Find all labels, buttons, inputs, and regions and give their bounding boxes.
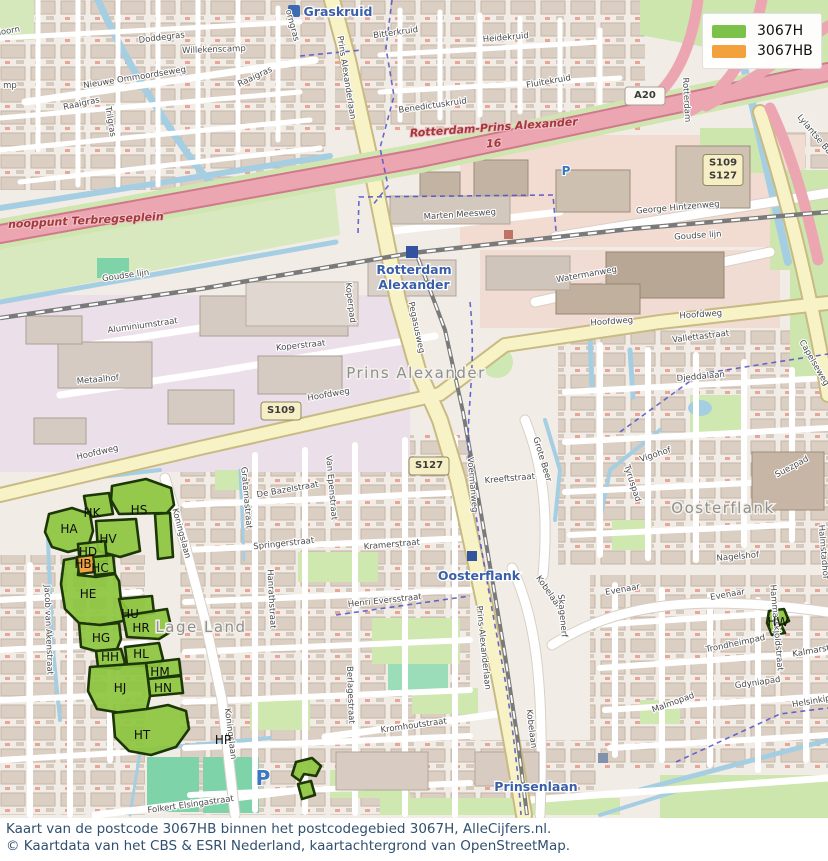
postcode-area-label: HG (92, 631, 110, 645)
station-label: Oosterflank (438, 568, 521, 583)
oosterflank-station-icon (467, 551, 477, 561)
legend-row-3067HB: 3067HB (712, 41, 812, 61)
postcode-area-label: HW (768, 615, 789, 629)
prinsenlaan-station-icon (598, 753, 608, 763)
postcode-area-label: HR (132, 621, 149, 635)
station-label: Rotterdam (376, 262, 451, 277)
road-badge-label: S127 (415, 460, 443, 471)
postcode-map-page: sdoornmpDoddegrasWillekenscampNieuwe Omm… (0, 0, 828, 861)
postcode-area-label: HC (91, 561, 108, 575)
postcode-area-label: HA (60, 522, 78, 536)
motorway-label: 16 (486, 136, 503, 150)
area-label: Lage Land (155, 618, 246, 636)
postcode-area-label: HP (215, 733, 231, 747)
postcode-area-label: HH (101, 650, 119, 664)
postcode-area-label: HB (74, 557, 91, 571)
road-badge-label: S109 (709, 158, 737, 169)
legend-label: 3067HB (757, 43, 813, 59)
map-legend: 3067H 3067HB (702, 13, 822, 69)
postcode-area-label: HV (99, 532, 117, 546)
legend-row-3067H: 3067H (712, 21, 812, 41)
postcode-area-label: HU (121, 607, 139, 621)
road-badge-label: A20 (634, 90, 656, 101)
map-image: sdoornmpDoddegrasWillekenscampNieuwe Omm… (0, 0, 828, 818)
postcode-area-label: HE (80, 587, 97, 601)
postcode-area-label: HS (131, 503, 148, 517)
rotterdam-alexander-station-icon (406, 246, 418, 258)
postcode-area-label: HK (84, 506, 102, 520)
area-label: Prins Alexander (346, 364, 486, 382)
postcode-area-label: HN (154, 681, 172, 695)
station-label: Alexander (378, 277, 450, 292)
road-badge-label: S109 (267, 405, 295, 416)
parking-icon: P (256, 766, 271, 790)
caption-line-1: Kaart van de postcode 3067HB binnen het … (6, 821, 828, 838)
map-canvas: sdoornmpDoddegrasWillekenscampNieuwe Omm… (0, 0, 828, 818)
station-label: Prinsenlaan (494, 779, 577, 794)
area-label: Oosterflank (671, 499, 774, 517)
postcode-area-label: HM (150, 665, 169, 679)
station-label: Graskruid (304, 4, 373, 19)
street-label: Berlagestraat (344, 666, 356, 725)
road-badge-label: S127 (709, 171, 737, 182)
parking-icon: P (562, 164, 571, 178)
street-label: mp (3, 81, 17, 91)
postcode-area-label: HT (134, 728, 151, 742)
legend-label: 3067H (757, 23, 803, 39)
map-caption: Kaart van de postcode 3067HB binnen het … (0, 818, 828, 861)
postcode-area-label: HL (133, 647, 149, 661)
postcode-area-label: HJ (114, 681, 127, 695)
legend-swatch-orange (712, 45, 746, 58)
legend-swatch-green (712, 25, 746, 38)
caption-line-2: © Kaartdata van het CBS & ESRI Nederland… (6, 838, 828, 855)
